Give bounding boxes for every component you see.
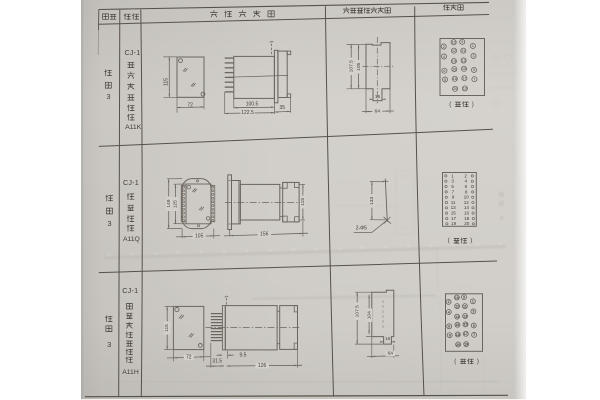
svg-text:): ) <box>472 102 474 108</box>
svg-text:12: 12 <box>464 200 470 205</box>
svg-text:5: 5 <box>451 184 454 189</box>
svg-text:105: 105 <box>356 62 362 70</box>
svg-text:149: 149 <box>166 199 172 207</box>
svg-text:5: 5 <box>473 324 475 328</box>
svg-text:11: 11 <box>461 49 465 53</box>
svg-text:18: 18 <box>464 216 470 221</box>
svg-text:19: 19 <box>463 87 467 91</box>
svg-text:133: 133 <box>369 197 375 205</box>
svg-text:125: 125 <box>173 200 179 208</box>
svg-text:10: 10 <box>464 195 470 200</box>
svg-text:115: 115 <box>164 324 170 332</box>
svg-text:12: 12 <box>455 304 459 308</box>
svg-text:122.5: 122.5 <box>241 110 254 116</box>
svg-text:72: 72 <box>186 354 192 360</box>
svg-text:4: 4 <box>448 310 450 314</box>
svg-text:31.5: 31.5 <box>212 359 222 365</box>
svg-text:8: 8 <box>465 189 468 194</box>
svg-text:1: 1 <box>451 173 454 178</box>
svg-text:12: 12 <box>452 49 456 53</box>
svg-text:(: ( <box>454 359 456 365</box>
svg-text:6: 6 <box>448 325 450 329</box>
svg-text:CJ-1: CJ-1 <box>123 178 139 187</box>
svg-text:115: 115 <box>300 198 306 206</box>
svg-text:9: 9 <box>452 195 455 200</box>
svg-text:156: 156 <box>260 232 269 238</box>
svg-text:16: 16 <box>464 211 470 216</box>
svg-text:15: 15 <box>451 211 457 216</box>
svg-text:16: 16 <box>385 336 391 341</box>
svg-text:17: 17 <box>462 76 466 80</box>
svg-text:2: 2 <box>464 173 467 178</box>
svg-text:18: 18 <box>453 77 457 81</box>
svg-text:1: 1 <box>472 44 474 48</box>
svg-text:9.5: 9.5 <box>240 353 247 359</box>
svg-text:5: 5 <box>473 68 475 72</box>
svg-text:17: 17 <box>464 332 468 336</box>
svg-text:2: 2 <box>443 45 445 49</box>
svg-text:8: 8 <box>449 333 451 337</box>
svg-text:19: 19 <box>464 342 468 346</box>
svg-text:64: 64 <box>375 108 381 114</box>
svg-text:2-Φ5: 2-Φ5 <box>356 225 367 231</box>
svg-text:104: 104 <box>366 311 372 319</box>
svg-text:7: 7 <box>473 77 475 81</box>
svg-text:20: 20 <box>453 87 457 91</box>
svg-text:14: 14 <box>452 59 456 63</box>
svg-text:115: 115 <box>163 78 169 86</box>
svg-text:14: 14 <box>455 315 459 319</box>
svg-text:8: 8 <box>444 78 446 82</box>
svg-text:105: 105 <box>195 233 204 239</box>
svg-text:): ) <box>470 238 472 244</box>
svg-text:20: 20 <box>456 343 460 347</box>
svg-text:A11Q: A11Q <box>123 236 140 243</box>
svg-text:7: 7 <box>473 333 475 337</box>
svg-text:(: ( <box>449 102 451 108</box>
svg-text:19: 19 <box>451 221 457 226</box>
svg-text:9: 9 <box>463 295 465 299</box>
svg-text:11: 11 <box>451 200 456 205</box>
svg-text:CJ-1: CJ-1 <box>122 286 138 295</box>
svg-text:35: 35 <box>280 105 286 111</box>
svg-text:15: 15 <box>464 323 468 327</box>
svg-text:13: 13 <box>463 314 467 318</box>
svg-text:A11K: A11K <box>125 124 142 131</box>
svg-text:2: 2 <box>448 300 450 304</box>
svg-text:3: 3 <box>472 310 474 314</box>
svg-text:4: 4 <box>443 55 445 59</box>
svg-text:16: 16 <box>455 323 459 327</box>
svg-text:(: ( <box>448 238 450 244</box>
svg-text:10: 10 <box>452 40 456 44</box>
svg-text:17: 17 <box>451 216 457 221</box>
svg-text:4: 4 <box>465 179 468 184</box>
svg-text:3: 3 <box>473 54 475 58</box>
svg-text:6: 6 <box>465 184 468 189</box>
svg-text:18: 18 <box>456 333 460 337</box>
svg-text:7: 7 <box>452 189 455 194</box>
svg-text:13: 13 <box>451 205 457 210</box>
svg-text:15: 15 <box>462 67 466 71</box>
svg-text:107.5: 107.5 <box>354 305 360 318</box>
svg-text:9: 9 <box>461 40 463 44</box>
svg-text:64: 64 <box>388 351 394 357</box>
svg-text:126: 126 <box>258 363 267 369</box>
svg-text:3: 3 <box>107 340 111 349</box>
svg-text:20: 20 <box>464 221 470 226</box>
svg-text:CJ-1: CJ-1 <box>125 48 141 57</box>
svg-text:6: 6 <box>443 69 445 73</box>
svg-text:): ) <box>477 359 479 365</box>
svg-text:11: 11 <box>463 304 467 308</box>
svg-text:14: 14 <box>464 205 470 210</box>
svg-text:3: 3 <box>107 219 111 228</box>
svg-text:A11H: A11H <box>122 369 139 376</box>
svg-text:16: 16 <box>452 67 456 71</box>
svg-text:72: 72 <box>187 103 193 109</box>
svg-text:100.5: 100.5 <box>246 102 259 108</box>
svg-text:3: 3 <box>451 179 454 184</box>
svg-text:16: 16 <box>375 94 381 100</box>
svg-text:10: 10 <box>455 296 459 300</box>
svg-text:1: 1 <box>472 300 474 304</box>
svg-text:3: 3 <box>106 92 110 101</box>
svg-text:13: 13 <box>462 59 466 63</box>
svg-text:107.5: 107.5 <box>348 60 354 73</box>
